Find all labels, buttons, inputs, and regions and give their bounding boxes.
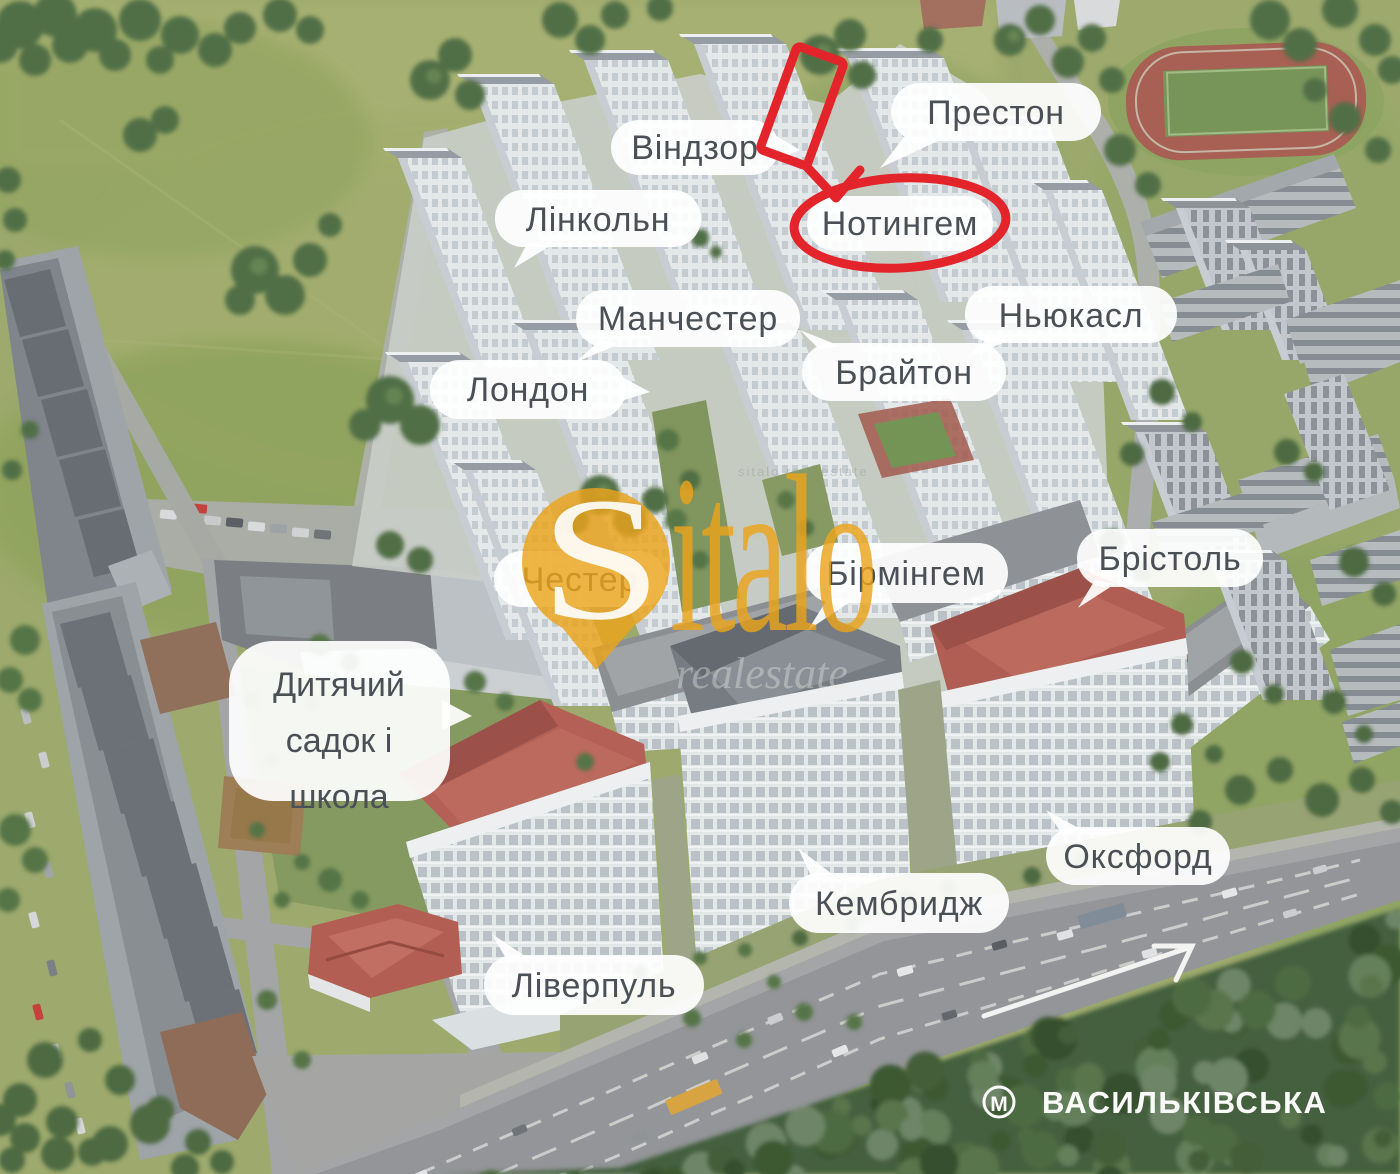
svg-text:Ньюкасл: Ньюкасл [999, 297, 1144, 335]
svg-text:садок і: садок і [286, 722, 393, 760]
svg-text:Дитячий: Дитячий [273, 666, 405, 704]
svg-text:Нотингем: Нотингем [822, 205, 978, 243]
svg-text:школа: школа [289, 778, 389, 816]
svg-text:italo: italo [670, 430, 874, 680]
svg-text:Віндзор: Віндзор [631, 129, 758, 167]
svg-text:S: S [540, 462, 662, 657]
svg-text:Лінкольн: Лінкольн [526, 201, 671, 239]
svg-text:Брістоль: Брістоль [1098, 540, 1241, 578]
svg-text:Ліверпуль: Ліверпуль [512, 967, 677, 1005]
svg-text:Оксфорд: Оксфорд [1063, 838, 1212, 876]
svg-text:Лондон: Лондон [467, 371, 589, 409]
svg-text:Кембридж: Кембридж [815, 885, 983, 923]
svg-text:Манчестер: Манчестер [598, 300, 778, 338]
svg-text:Престон: Престон [927, 94, 1065, 132]
svg-text:realestate: realestate [676, 649, 848, 698]
svg-text:Брайтон: Брайтон [835, 354, 973, 392]
